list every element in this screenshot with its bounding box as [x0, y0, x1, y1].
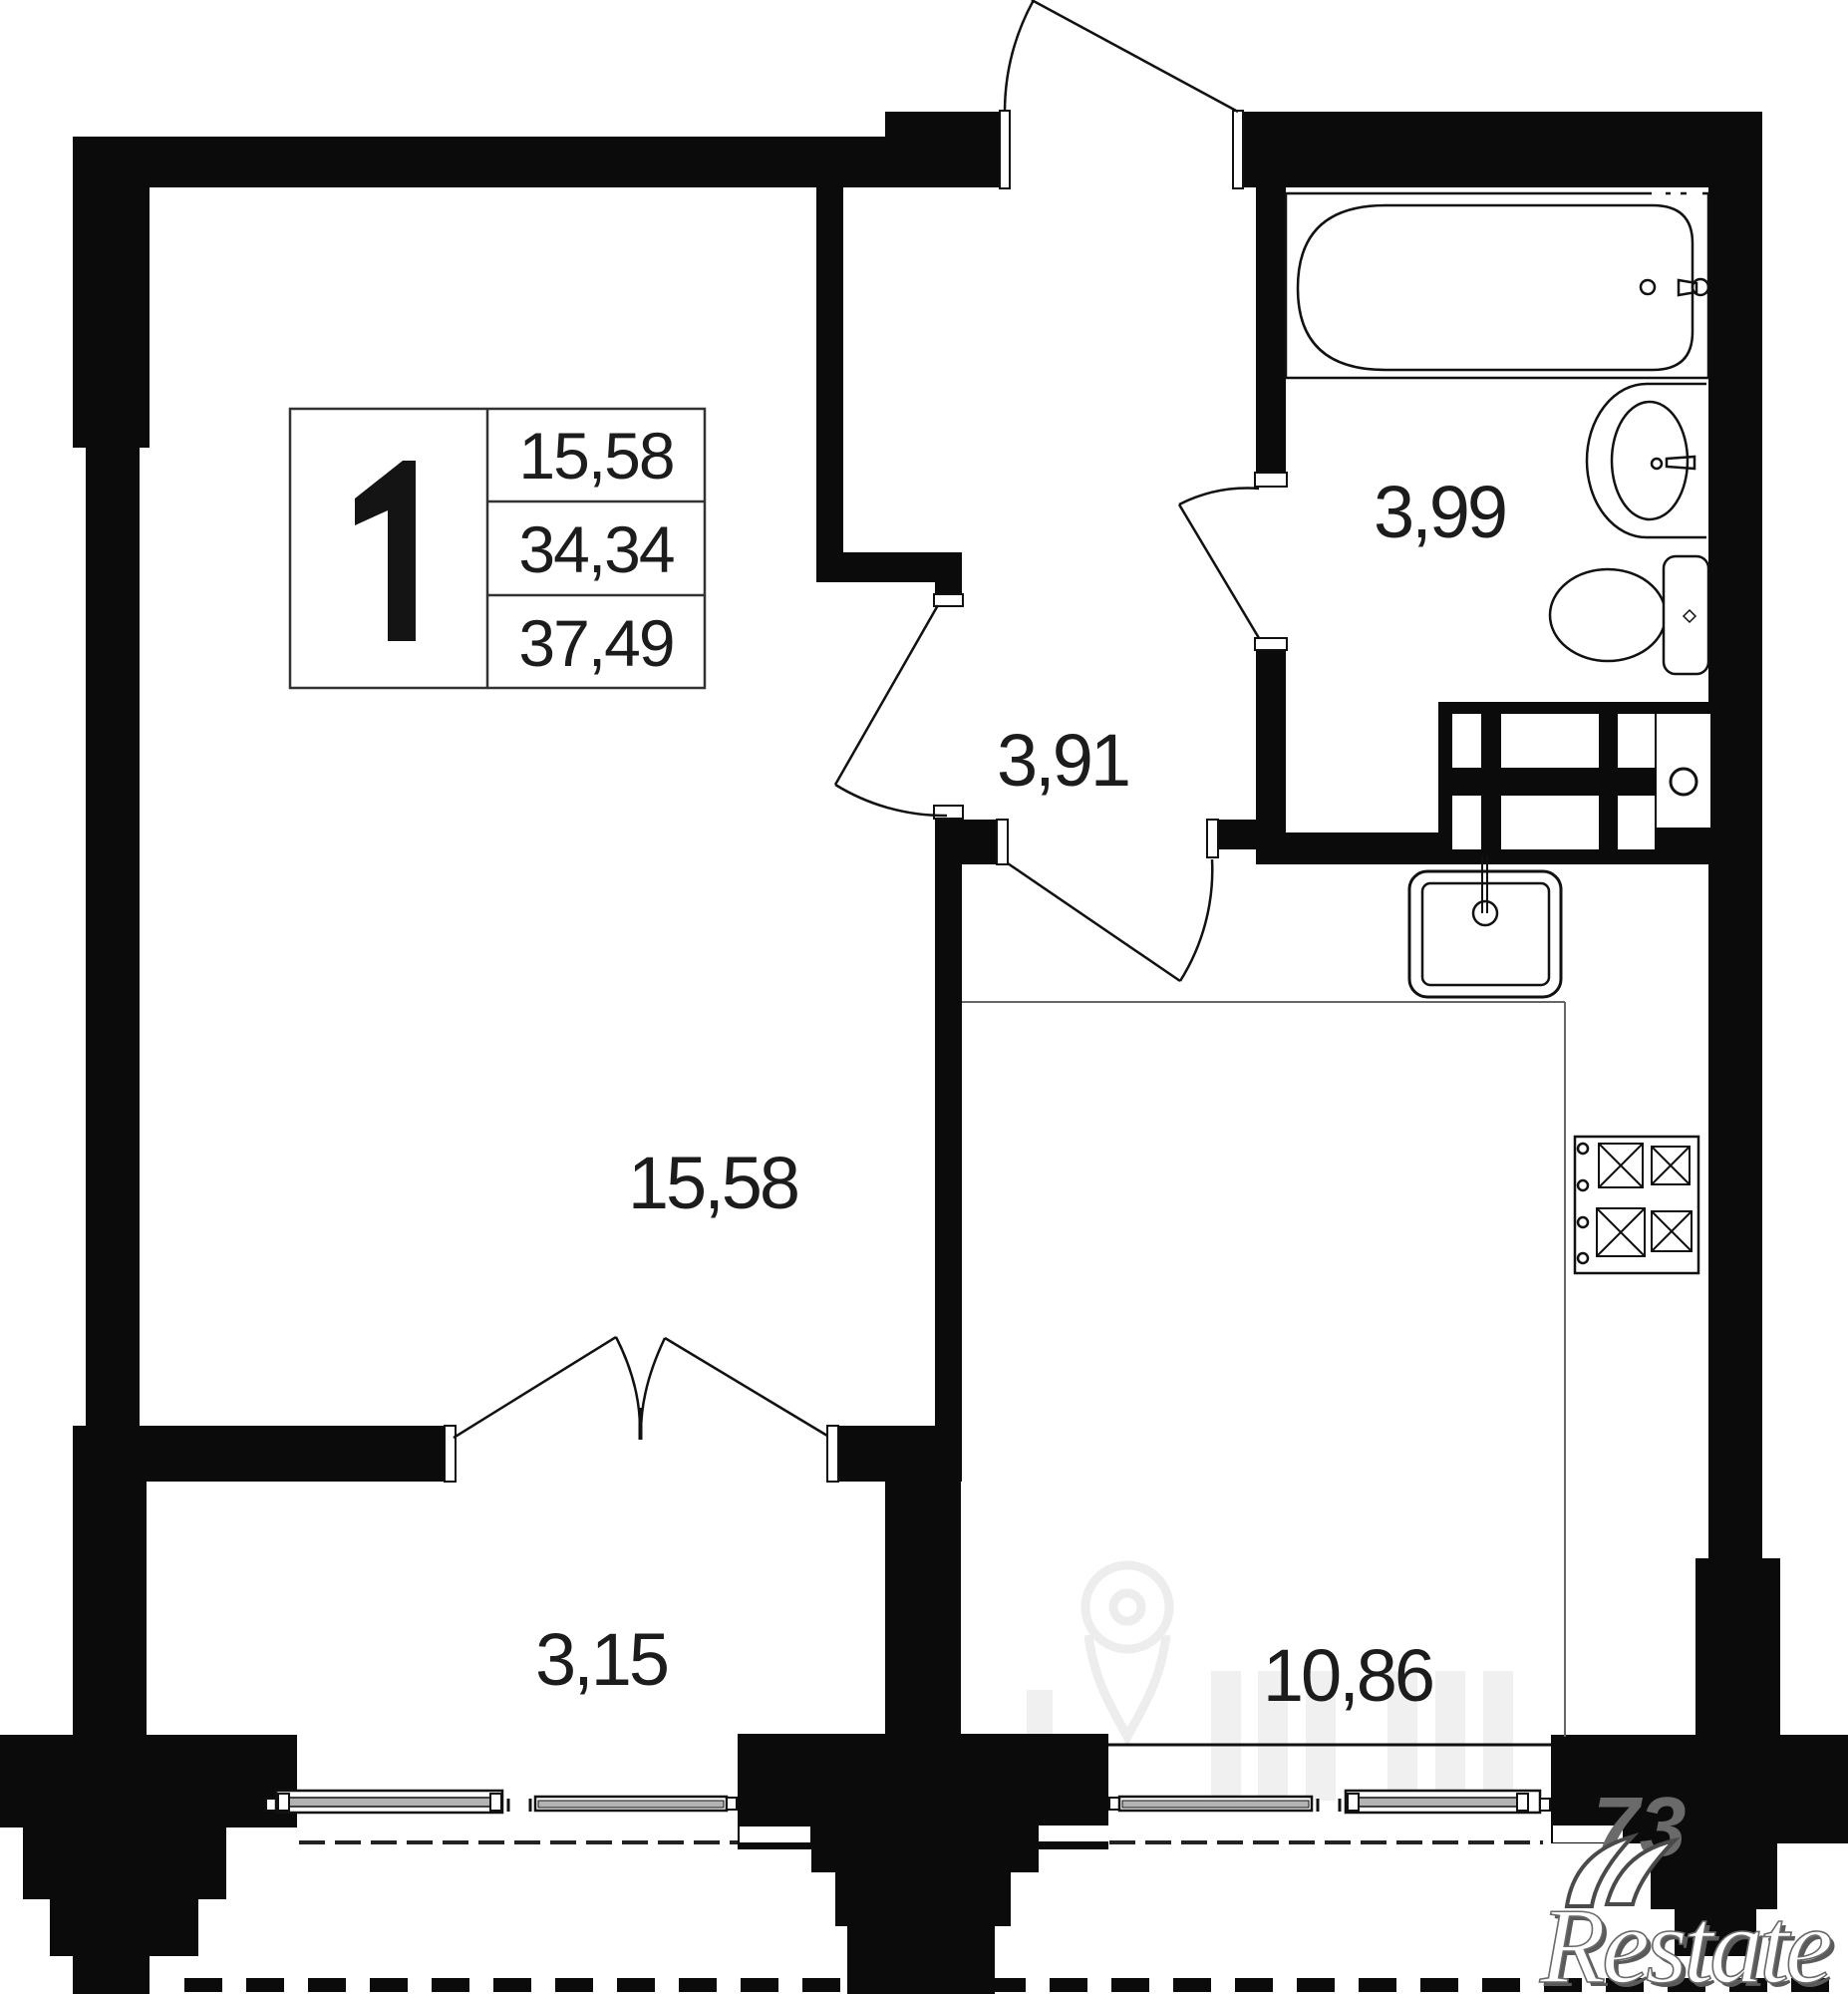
svg-text:15,58: 15,58 — [628, 1142, 797, 1224]
svg-text:15,58: 15,58 — [518, 419, 673, 493]
svg-text:37,49: 37,49 — [518, 606, 673, 680]
svg-text:Restate: Restate — [1539, 1887, 1831, 1994]
svg-text:34,34: 34,34 — [518, 512, 673, 586]
svg-text:3,91: 3,91 — [997, 719, 1128, 802]
svg-text:3,99: 3,99 — [1374, 471, 1505, 553]
svg-text:3,15: 3,15 — [535, 1618, 668, 1701]
svg-text:10,86: 10,86 — [1263, 1634, 1432, 1717]
